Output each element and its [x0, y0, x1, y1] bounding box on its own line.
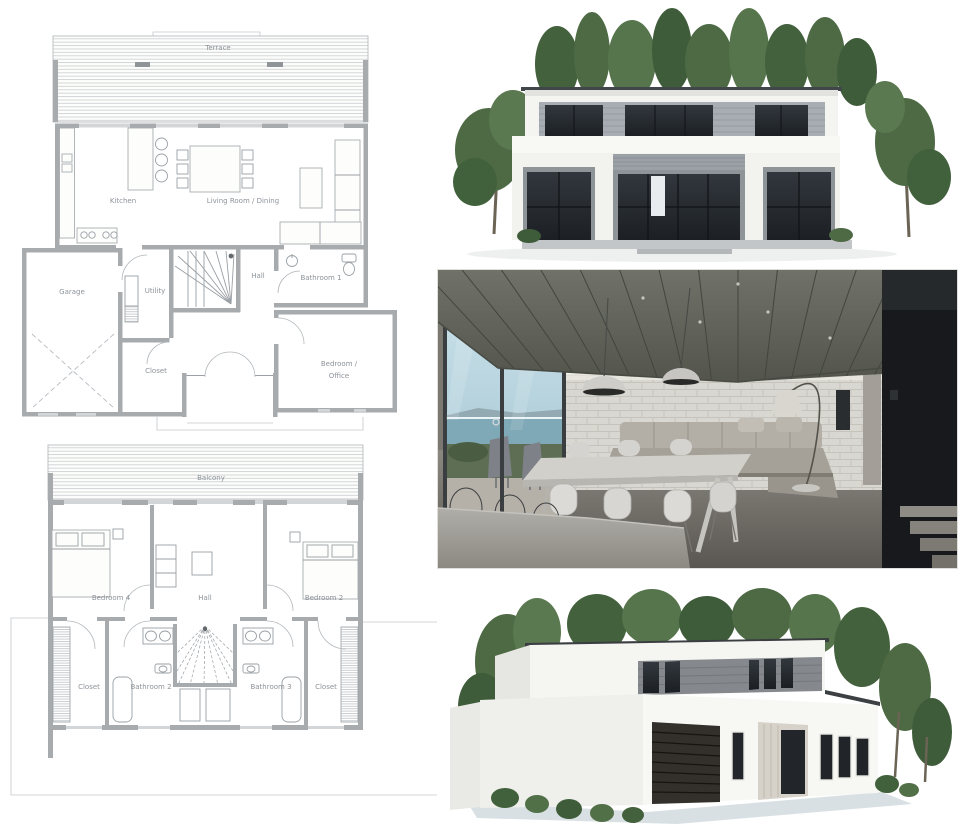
- lamp-base: [792, 484, 820, 492]
- interior-render: [437, 269, 958, 569]
- terrace-platform: [522, 240, 852, 249]
- tall-window: [820, 734, 833, 780]
- label-bathroom2: Bathroom 2: [130, 683, 171, 691]
- lower-roof-outline: [11, 618, 454, 795]
- bedroom4: Bedroom 4: [52, 529, 150, 611]
- kitchen-counter: [60, 128, 75, 238]
- garage-cross: [32, 334, 114, 408]
- stair-step: [900, 506, 957, 517]
- porch-edge: [157, 417, 363, 430]
- bar-stool: [156, 154, 168, 166]
- garage: Garage: [22, 248, 182, 417]
- sofa-chaise: [280, 222, 361, 244]
- bed: [303, 542, 358, 599]
- dark-wall: [882, 270, 957, 568]
- label-utility: Utility: [145, 287, 166, 295]
- staircase-f1: Hall: [169, 249, 265, 313]
- closet-right: Closet: [304, 621, 358, 725]
- bed: [52, 530, 110, 597]
- label-hall-f2: Hall: [198, 594, 211, 602]
- perspective-render: [437, 572, 958, 828]
- sofa-pillow: [738, 418, 764, 432]
- house-lower-floor: [512, 136, 840, 240]
- entry-door: [781, 730, 805, 794]
- bathroom2: Bathroom 2: [105, 621, 173, 725]
- bathroom1: Bathroom 1: [274, 249, 368, 308]
- upper-window: [625, 105, 713, 137]
- label-terrace: Terrace: [204, 44, 230, 52]
- house-plan-collage: Terrace Kitchen Livin: [0, 0, 960, 828]
- balcony-decking: [48, 445, 363, 500]
- wardrobe: [341, 627, 358, 722]
- label-closet-f1: Closet: [145, 367, 167, 375]
- utility: Utility: [125, 249, 174, 338]
- double-sink: [143, 628, 173, 644]
- nightstand: [113, 529, 123, 539]
- double-sink: [243, 628, 273, 644]
- door-reflection: [651, 176, 665, 216]
- second-floor-plan: Balcony Bedroom 4: [10, 437, 456, 809]
- label-closet-right: Closet: [315, 683, 337, 691]
- toilet: [342, 254, 356, 262]
- terrace-post: [267, 62, 283, 67]
- first-floor-plan: Terrace Kitchen Livin: [18, 28, 410, 432]
- staircase-f2: [173, 624, 237, 721]
- bedroom-office: Bedroom / Office: [274, 310, 397, 413]
- stair-treads: [177, 626, 233, 685]
- label-living: Living Room / Dining: [207, 197, 279, 205]
- bar-stool: [156, 170, 168, 182]
- label-bedroom2: Bedroom 2: [305, 594, 343, 602]
- closet-left: Closet: [53, 621, 100, 722]
- dining-chair: [177, 150, 188, 160]
- dresser: [156, 545, 176, 587]
- kitchen-island: [128, 128, 153, 190]
- stair-newel: [229, 254, 234, 259]
- stair-landing: [180, 689, 200, 721]
- coffee-table: [300, 168, 322, 208]
- balcony-area: Balcony: [48, 445, 363, 500]
- shrub: [517, 229, 541, 243]
- entry-step: [637, 249, 732, 254]
- terrace-area: Terrace: [53, 32, 368, 122]
- washer: [125, 306, 138, 322]
- label-bedroom4: Bedroom 4: [92, 594, 131, 602]
- terrace-post: [135, 62, 150, 67]
- bar-stool: [156, 138, 168, 150]
- utility-cabinet: [125, 276, 138, 306]
- label-closet-left: Closet: [78, 683, 100, 691]
- living-furniture: [280, 140, 361, 244]
- dining-table: [190, 146, 240, 192]
- hall-table: [192, 552, 212, 575]
- nightstand: [290, 532, 300, 542]
- label-balcony: Balcony: [197, 474, 225, 482]
- closet-f1: Closet: [123, 338, 170, 375]
- label-hall-f1: Hall: [251, 272, 264, 280]
- hall-f2: Hall: [156, 545, 212, 602]
- bathtub: [113, 677, 132, 722]
- kitchen-sink: [62, 154, 72, 162]
- bathroom3: Bathroom 3: [243, 621, 301, 722]
- wall-pillar: [863, 360, 881, 485]
- label-bathroom3: Bathroom 3: [250, 683, 291, 691]
- upper-window: [643, 662, 659, 693]
- light-switch: [890, 390, 898, 400]
- terrace-outline: [53, 32, 368, 36]
- front-elevation-render: [437, 2, 958, 264]
- dining-set: Living Room / Dining: [177, 146, 279, 205]
- bedroom2: Bedroom 2: [267, 532, 358, 611]
- tv-panel: [836, 390, 850, 430]
- slot-window: [732, 732, 744, 780]
- shrub: [829, 228, 853, 242]
- label-kitchen: Kitchen: [110, 197, 136, 205]
- stair-treads: [175, 251, 234, 304]
- label-bathroom1: Bathroom 1: [300, 274, 341, 282]
- kitchen: Kitchen: [60, 128, 168, 243]
- label-bedroom-office-2: Office: [329, 372, 349, 380]
- label-bedroom-office-1: Bedroom /: [321, 360, 358, 368]
- side-annex: [450, 702, 480, 810]
- entry-double-door: [205, 352, 255, 377]
- label-garage: Garage: [59, 288, 85, 296]
- wardrobe: [53, 627, 70, 722]
